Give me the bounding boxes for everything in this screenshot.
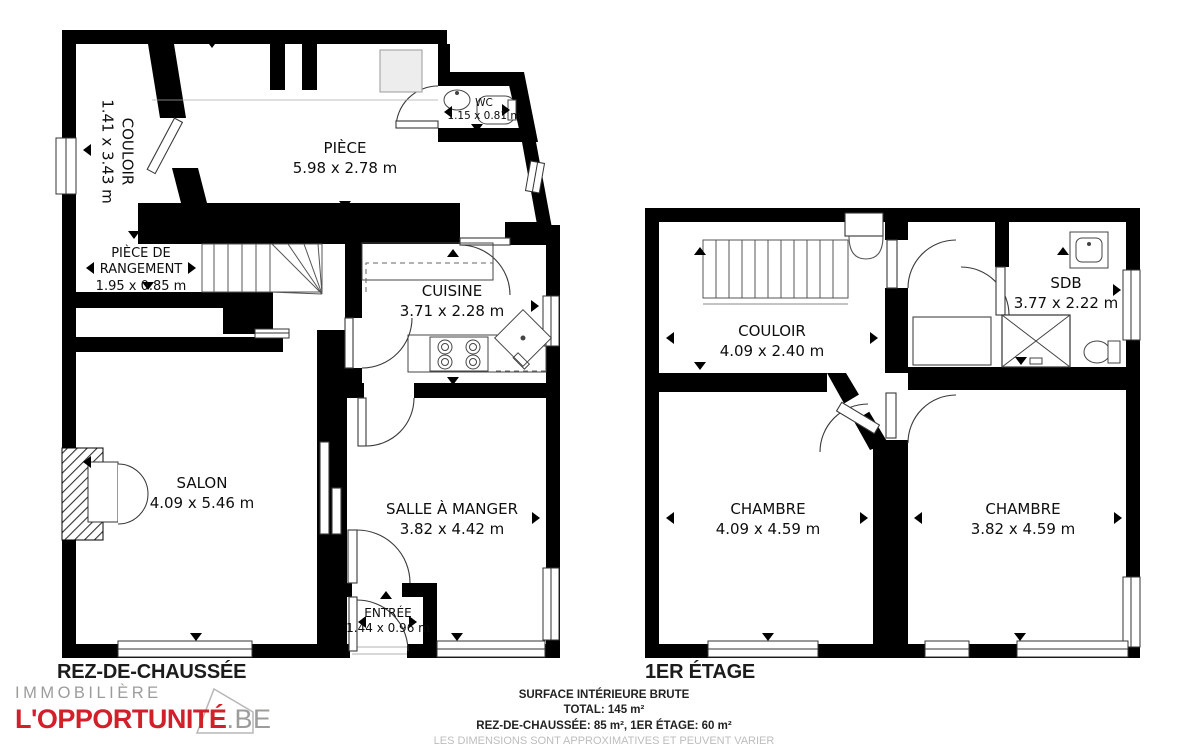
room-dims: 3.77 x 2.22 m (986, 294, 1146, 314)
room-label-entree: ENTRÉE 1.44 x 0.96 m (330, 606, 446, 636)
room-name: CUISINE (372, 282, 532, 302)
room-label-couloir-rdc: COULOIR 1.41 x 3.43 m (98, 87, 137, 217)
room-name: SALLE À MANGER (352, 500, 552, 520)
room-label-chambre-gauche: CHAMBRE 4.09 x 4.59 m (688, 500, 848, 539)
surface-detail: REZ-DE-CHAUSSÉE: 85 m², 1ER ÉTAGE: 60 m² (408, 719, 800, 734)
stairs-icon (703, 240, 848, 304)
room-dims: 1.15 x 0.81 m (438, 110, 530, 123)
room-name: SDB (986, 274, 1146, 294)
room-dims: 1.95 x 0.85 m (82, 279, 200, 295)
room-dims: 3.71 x 2.28 m (372, 302, 532, 322)
sink-icon (1070, 232, 1108, 268)
room-label-sdb: SDB 3.77 x 2.22 m (986, 274, 1146, 313)
room-name: CHAMBRE (943, 500, 1103, 520)
room-name: SALON (122, 474, 282, 494)
room-label-salon: SALON 4.09 x 5.46 m (122, 474, 282, 513)
room-name: PIÈCE (265, 139, 425, 159)
room-name: CHAMBRE (688, 500, 848, 520)
logo-brand: L'OPPORTUNITÉ (15, 704, 226, 734)
room-dims: 4.09 x 4.59 m (688, 520, 848, 540)
surface-title: SURFACE INTÉRIEURE BRUTE (408, 688, 800, 703)
room-label-chambre-droite: CHAMBRE 3.82 x 4.59 m (943, 500, 1103, 539)
room-dims: 3.82 x 4.42 m (352, 520, 552, 540)
stove-icon (430, 337, 488, 371)
logo-immobiliere: IMMOBILIÈRE (15, 684, 295, 703)
room-dims: 4.09 x 2.40 m (692, 342, 852, 362)
surface-disclaimer: LES DIMENSIONS SONT APPROXIMATIVES ET PE… (408, 734, 800, 749)
floor-label-ground: REZ-DE-CHAUSSÉE (57, 661, 246, 684)
room-name: ENTRÉE (330, 606, 446, 621)
room-dims: 1.44 x 0.96 m (330, 621, 446, 636)
room-label-wc: WC 1.15 x 0.81 m (438, 97, 530, 123)
room-name: COULOIR (117, 87, 137, 217)
room-label-salle-a-manger: SALLE À MANGER 3.82 x 4.42 m (352, 500, 552, 539)
floor-plan-canvas (0, 0, 1201, 750)
room-label-cuisine: CUISINE 3.71 x 2.28 m (372, 282, 532, 321)
surface-summary: SURFACE INTÉRIEURE BRUTE TOTAL: 145 m² R… (408, 688, 800, 749)
room-name: PIÈCE DE RANGEMENT (82, 246, 200, 279)
surface-total: TOTAL: 145 m² (408, 703, 800, 718)
toilet-icon (1084, 341, 1120, 363)
closet-box (913, 317, 991, 365)
room-dims: 5.98 x 2.78 m (265, 159, 425, 179)
room-name: WC (438, 97, 530, 110)
floor-plan-page: COULOIR 1.41 x 3.43 m PIÈCE 5.98 x 2.78 … (0, 0, 1201, 750)
logo-tld: .BE (226, 704, 271, 734)
room-dims: 1.41 x 3.43 m (98, 87, 118, 217)
logo-main: L'OPPORTUNITÉ.BE (15, 704, 295, 735)
room-dims: 3.82 x 4.59 m (943, 520, 1103, 540)
floor-label-first: 1ER ÉTAGE (645, 661, 755, 684)
agency-logo: IMMOBILIÈRE L'OPPORTUNITÉ.BE (15, 684, 295, 735)
room-name: COULOIR (692, 322, 852, 342)
room-label-piece: PIÈCE 5.98 x 2.78 m (265, 139, 425, 178)
shower-icon (1002, 315, 1070, 367)
room-label-couloir-etage: COULOIR 4.09 x 2.40 m (692, 322, 852, 361)
room-label-rangement: PIÈCE DE RANGEMENT 1.95 x 0.85 m (82, 246, 200, 295)
room-dims: 4.09 x 5.46 m (122, 494, 282, 514)
